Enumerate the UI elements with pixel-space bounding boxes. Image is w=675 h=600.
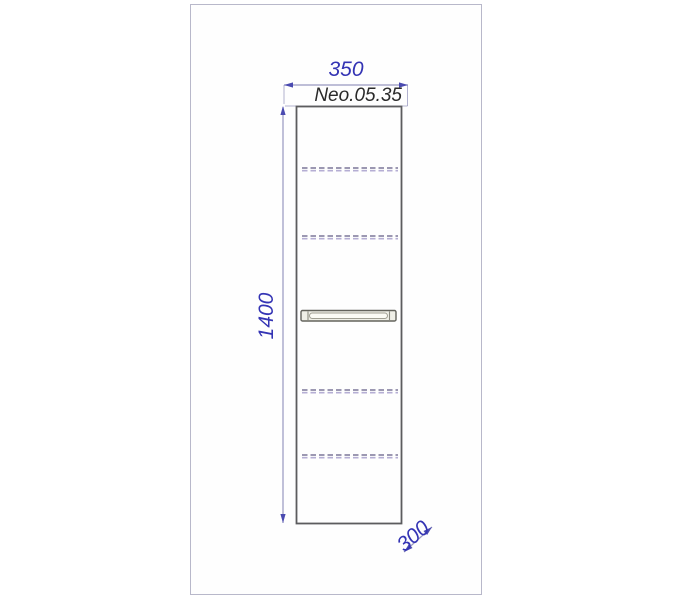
width-dimension-label: 350 <box>284 59 408 81</box>
height-dimension-label: 1400 <box>256 286 278 346</box>
height-dimension-line <box>280 106 285 523</box>
door-handle <box>301 311 396 322</box>
drawing-canvas: 350 Neo.05.35 1400 300 <box>0 0 675 600</box>
model-label: Neo.05.35 <box>300 86 402 105</box>
